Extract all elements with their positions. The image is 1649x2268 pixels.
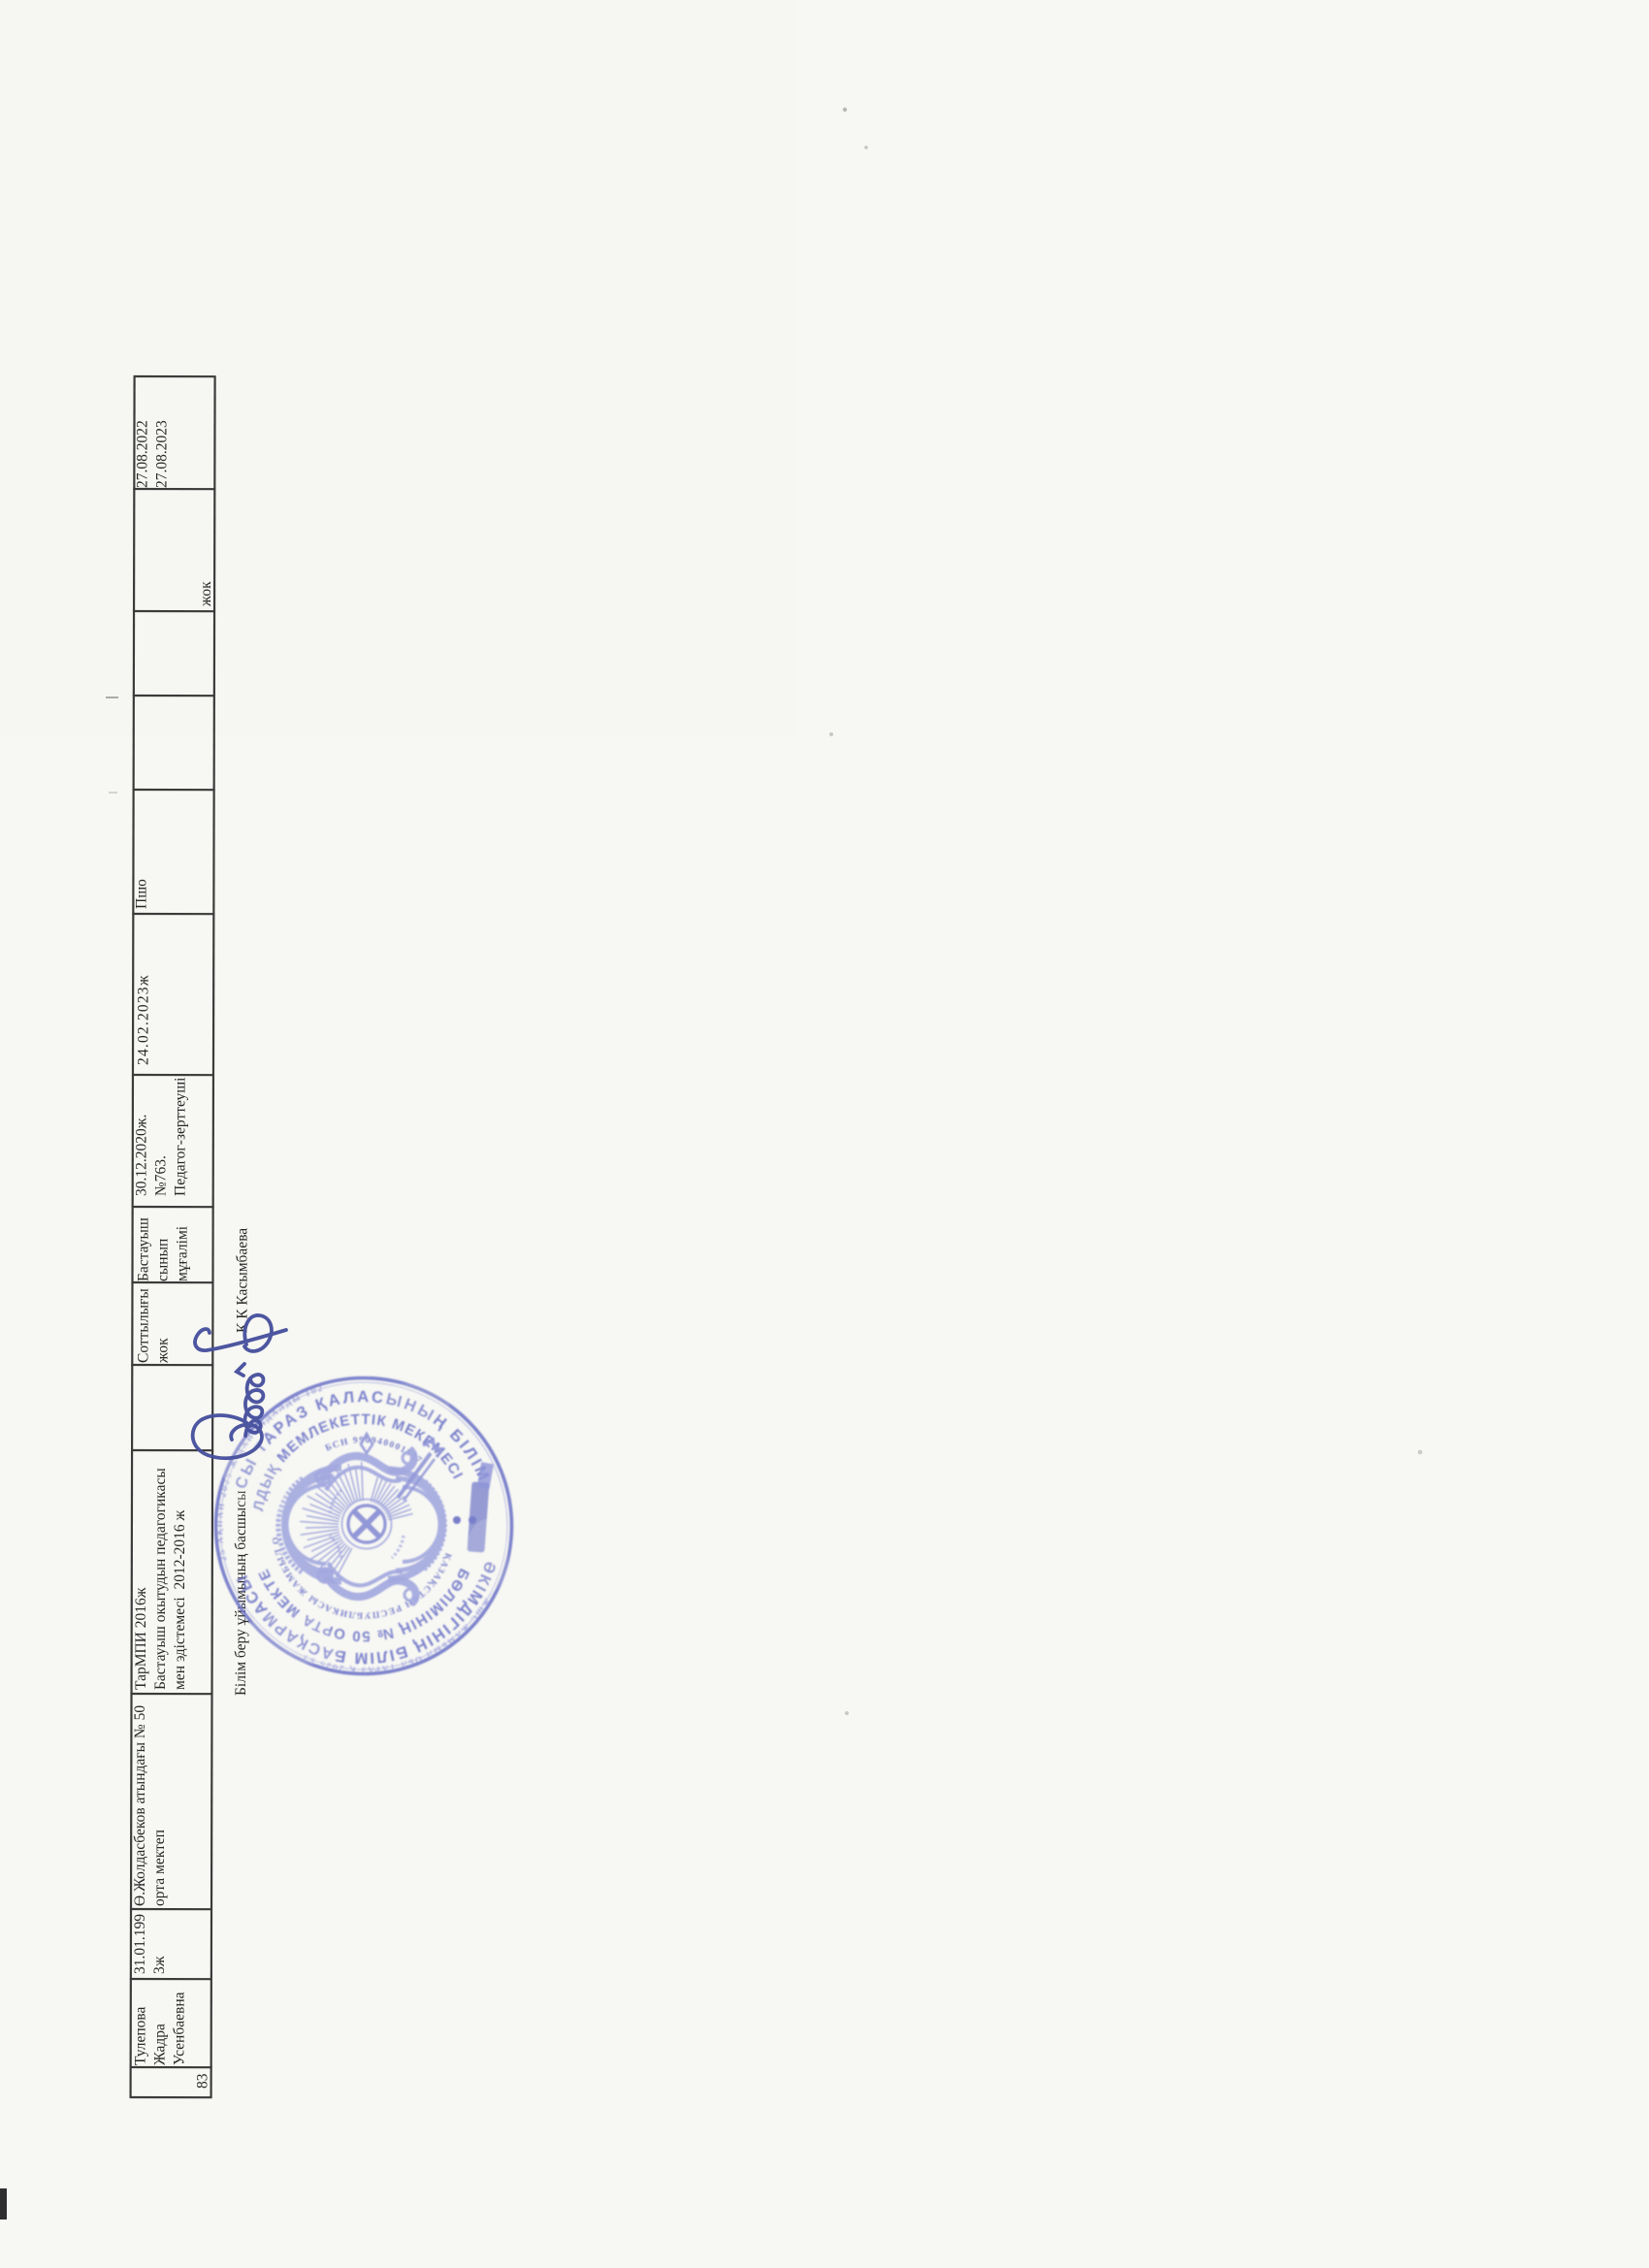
- svg-text:83: 83: [195, 2073, 211, 2089]
- svg-text:Бастауыш: Бастауыш: [136, 1217, 152, 1281]
- svg-text:30.12.2020ж.: 30.12.2020ж.: [133, 1115, 149, 1196]
- svg-text:Педагог-зерттеуші: Педагог-зерттеуші: [172, 1077, 188, 1196]
- svg-text:Усенбаевна: Усенбаевна: [172, 1992, 188, 2065]
- svg-text:мұғалімі: мұғалімі: [175, 1225, 191, 1281]
- svg-text:жок: жок: [198, 581, 214, 607]
- svg-text:мен эдістемесі 2012-2016 ж: мен эдістемесі 2012-2016 ж: [172, 1510, 188, 1690]
- svg-text:27.08.2022: 27.08.2022: [135, 420, 151, 488]
- svg-text:Бастауыш окытудын педагогикасы: Бастауыш окытудын педагогикасы: [152, 1468, 169, 1690]
- svg-text:№763.: №763.: [152, 1155, 169, 1196]
- svg-text:3ж: 3ж: [151, 1956, 168, 1974]
- svg-text:К К Касымбаева: К К Касымбаева: [234, 1228, 250, 1333]
- svg-text:сынып: сынып: [155, 1239, 172, 1281]
- svg-text:Ө.Жолдасбеков атындағы № 50: Ө.Жолдасбеков атындағы № 50: [132, 1705, 148, 1906]
- svg-text:Соттылығы: Соттылығы: [136, 1288, 152, 1363]
- svg-text:27.08.2023: 27.08.2023: [154, 420, 171, 488]
- svg-text:24.02.2023ж: 24.02.2023ж: [136, 974, 152, 1065]
- svg-text:ТарМПИ 2016ж: ТарМПИ 2016ж: [133, 1587, 149, 1690]
- svg-text:жок: жок: [155, 1338, 172, 1364]
- svg-text:Жадра: Жадра: [152, 2024, 169, 2065]
- svg-text:31.01.199: 31.01.199: [132, 1914, 148, 1974]
- svg-text:орта мектеп: орта мектеп: [151, 1830, 168, 1906]
- svg-text:Пшо: Пшо: [134, 879, 150, 909]
- svg-text:Тулепова: Тулепова: [133, 2006, 149, 2065]
